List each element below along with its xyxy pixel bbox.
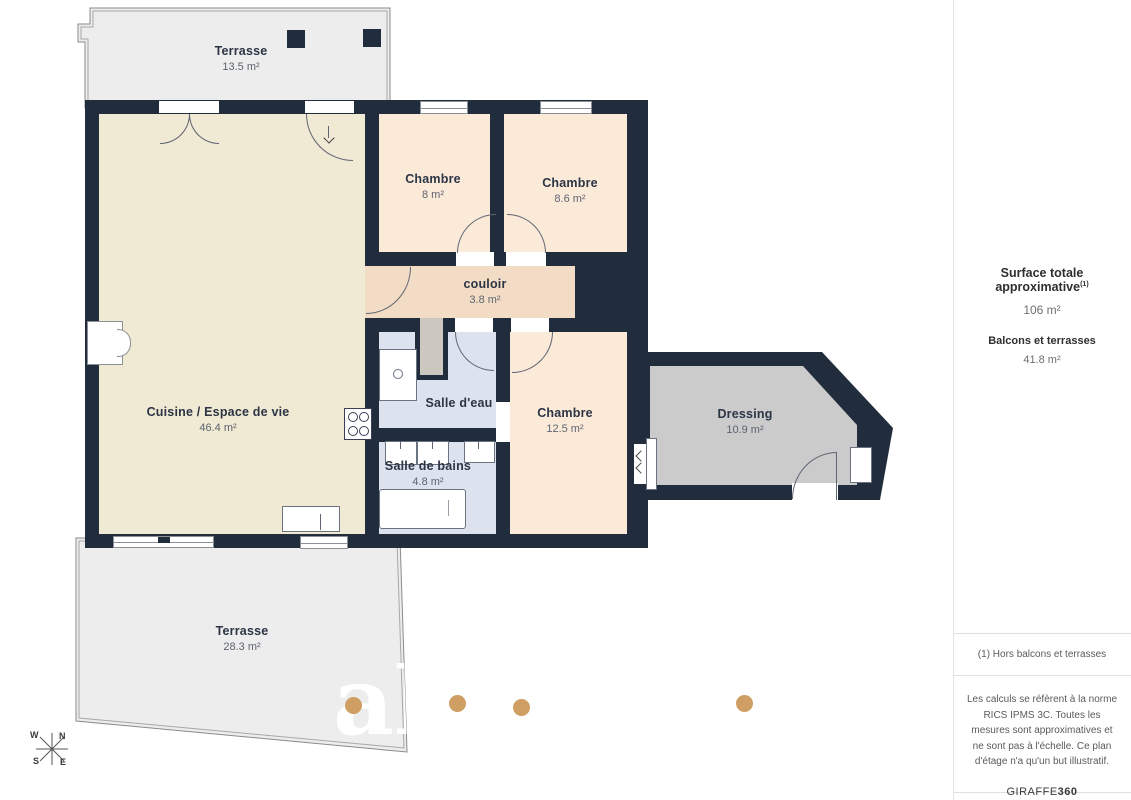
balcony-label: Balcons et terrasses (953, 335, 1131, 347)
surface-summary: Surface totale approximative(1) 106 m² B… (953, 266, 1131, 366)
floor-plan-page: ah (0, 0, 1131, 800)
sink-tap (400, 441, 401, 449)
hallway-closet (415, 318, 448, 380)
compass-south-label: S (33, 756, 39, 766)
disclaimer-cell: Les calculs se réfèrent à la norme RICS … (953, 676, 1131, 793)
kitchen-sink (282, 506, 340, 532)
room-label-living: Cuisine / Espace de vie 46.4 m² (147, 405, 290, 434)
room-label-bedroom3: Chambre 12.5 m² (537, 406, 593, 435)
dressing-slide-door-panel (646, 438, 657, 490)
photo-dot (513, 699, 530, 716)
balcony-value: 41.8 m² (953, 354, 1131, 366)
room-label-terrace-bottom: Terrasse 28.3 m² (216, 624, 269, 653)
room-label-shower-room: Salle d'eau (425, 396, 492, 410)
surface-total-title: Surface totale approximative(1) (953, 266, 1131, 294)
sink-tap (478, 441, 479, 449)
kitchen-sink-tap (320, 514, 321, 530)
compass-west-label: W (30, 730, 39, 740)
room-label-terrace-top: Terrasse 13.5 m² (215, 44, 268, 73)
stove-icon (344, 408, 372, 440)
photo-dot (345, 697, 362, 714)
room-label-dressing: Dressing 10.9 m² (717, 407, 772, 436)
french-door-gap (159, 101, 219, 113)
surface-total-value: 106 m² (953, 303, 1131, 317)
entrance-door-gap (305, 101, 354, 113)
compass-north-label: N (59, 731, 66, 741)
room-label-hallway: couloir 3.8 m² (463, 277, 506, 306)
footnote-cell: (1) Hors balcons et terrasses (953, 633, 1131, 676)
dressing-door-leaf (836, 452, 837, 500)
shower-drain-icon (393, 369, 403, 379)
terrace-pillar (363, 29, 381, 47)
photo-dot (736, 695, 753, 712)
shower-room-door-gap (455, 318, 493, 332)
footnote-text: (1) Hors balcons et terrasses (978, 649, 1106, 660)
terrace-pillar (287, 30, 305, 48)
window-living-bottom (300, 536, 348, 549)
compass-east-label: E (60, 757, 66, 767)
disclaimer-text: Les calculs se réfèrent à la norme RICS … (965, 692, 1119, 770)
sink-tap (432, 441, 433, 449)
footnote-marker: (1) (1080, 281, 1089, 288)
bathroom-door-gap (496, 402, 510, 442)
bedroom1-door-gap (456, 252, 494, 266)
bedroom2-door-gap (506, 252, 546, 266)
dressing-window (850, 447, 872, 483)
window-tick (158, 537, 170, 543)
room-label-bathroom: Salle de bains 4.8 m² (385, 459, 471, 488)
bathtub (379, 489, 466, 529)
room-label-bedroom2: Chambre 8.6 m² (542, 176, 598, 205)
room-living-fill (99, 114, 365, 534)
brand-logo: GIRAFFE360 (965, 784, 1119, 800)
window-bedroom1 (420, 101, 468, 114)
room-label-bedroom1: Chambre 8 m² (405, 172, 461, 201)
window-bedroom2 (540, 101, 592, 114)
bathtub-detail (448, 500, 449, 516)
photo-dot (449, 695, 466, 712)
bedroom3-door-gap (511, 318, 549, 332)
